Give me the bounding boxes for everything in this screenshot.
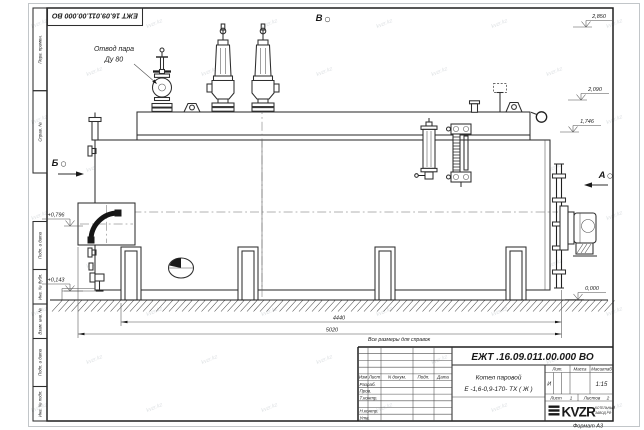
- support-leg: [506, 247, 526, 300]
- svg-text:Б: Б: [52, 158, 59, 169]
- margin-label: Инв. № подл.: [38, 390, 43, 417]
- manhole: [169, 258, 194, 278]
- company-line2: ЗАВОД РФ: [595, 411, 612, 415]
- fire-door: [78, 203, 135, 245]
- deck-fitting-right: [470, 101, 480, 113]
- role-prov: Пров.: [360, 389, 372, 394]
- svg-text:А: А: [598, 170, 606, 181]
- sheets-number: 2: [606, 396, 610, 401]
- rev-header-podp: Подп.: [418, 375, 430, 380]
- svg-text:Отвод пара: Отвод пара: [94, 45, 134, 53]
- sheet-label: Лист: [549, 396, 562, 401]
- drawing-sheet: kvzr.kzkvzr.kzkvzr.kzkvzr.kzkvzr.kzkvzr.…: [0, 0, 644, 430]
- support-leg: [238, 247, 258, 300]
- top-doc-number: ЕЖТ 16.09.011.00.000 ВО: [52, 12, 138, 21]
- role-nkontr: Н.контр.: [360, 409, 379, 414]
- logo-mark: [549, 406, 560, 408]
- support-leg: [121, 247, 141, 300]
- rev-header-data: Дата: [436, 375, 449, 380]
- lit-value: И: [547, 382, 551, 388]
- margin-label: Подп. и дата: [38, 348, 43, 376]
- product-name: Котел паровой: [476, 374, 522, 382]
- company-line1: КОТЕЛЬНЫЙ: [595, 406, 616, 410]
- margin-label: Справ. №: [38, 122, 43, 142]
- rev-header-izm: Изм: [359, 375, 367, 380]
- logo-text: KVZR: [562, 405, 597, 420]
- margin-label: Перв. примен.: [38, 35, 43, 64]
- reference-note: Все размеры для справок: [368, 337, 431, 343]
- margin-label: Инв. № дубл.: [38, 274, 43, 300]
- svg-text:2,850: 2,850: [591, 14, 607, 20]
- svg-text:+0,796: +0,796: [48, 213, 66, 219]
- role-tkontr: Т.контр.: [360, 395, 378, 400]
- lit-header: Лит.: [551, 367, 562, 372]
- rev-header-list: Лист: [368, 375, 381, 380]
- support-leg: [375, 247, 395, 300]
- svg-text:0,000: 0,000: [585, 286, 600, 292]
- massa-header: Масса: [574, 367, 588, 372]
- svg-text:2,090: 2,090: [587, 87, 603, 93]
- format-label: Формат А3: [573, 423, 604, 429]
- scale-header: Масштаб: [591, 367, 612, 372]
- scale-value: 1:15: [596, 382, 608, 388]
- svg-text:Ду 80: Ду 80: [104, 57, 123, 64]
- burner-assembly: [560, 206, 597, 256]
- role-utv: Утв.: [360, 415, 370, 420]
- svg-text:4440: 4440: [333, 316, 346, 322]
- svg-text:5020: 5020: [326, 328, 339, 334]
- margin-label: Взам. инв. №: [38, 308, 43, 335]
- role-razrab: Разраб.: [360, 382, 376, 387]
- margin-label: Подп. и дата: [38, 231, 43, 259]
- doc-number: ЕЖТ .16.09.011.00.000 ВО: [471, 352, 593, 363]
- product-designation: Е -1,6-0,9-170- ТХ ( Ж ): [464, 386, 532, 393]
- boiler-body: [95, 140, 550, 290]
- svg-text:В: В: [316, 13, 323, 24]
- sheets-label: Листов: [583, 396, 601, 401]
- svg-text:+0,143: +0,143: [48, 278, 66, 284]
- svg-text:1,746: 1,746: [580, 119, 595, 125]
- drawing-page: kvzr.kzkvzr.kzkvzr.kzkvzr.kzkvzr.kzkvzr.…: [0, 0, 644, 430]
- rev-header-ndoc: N докум.: [388, 375, 406, 380]
